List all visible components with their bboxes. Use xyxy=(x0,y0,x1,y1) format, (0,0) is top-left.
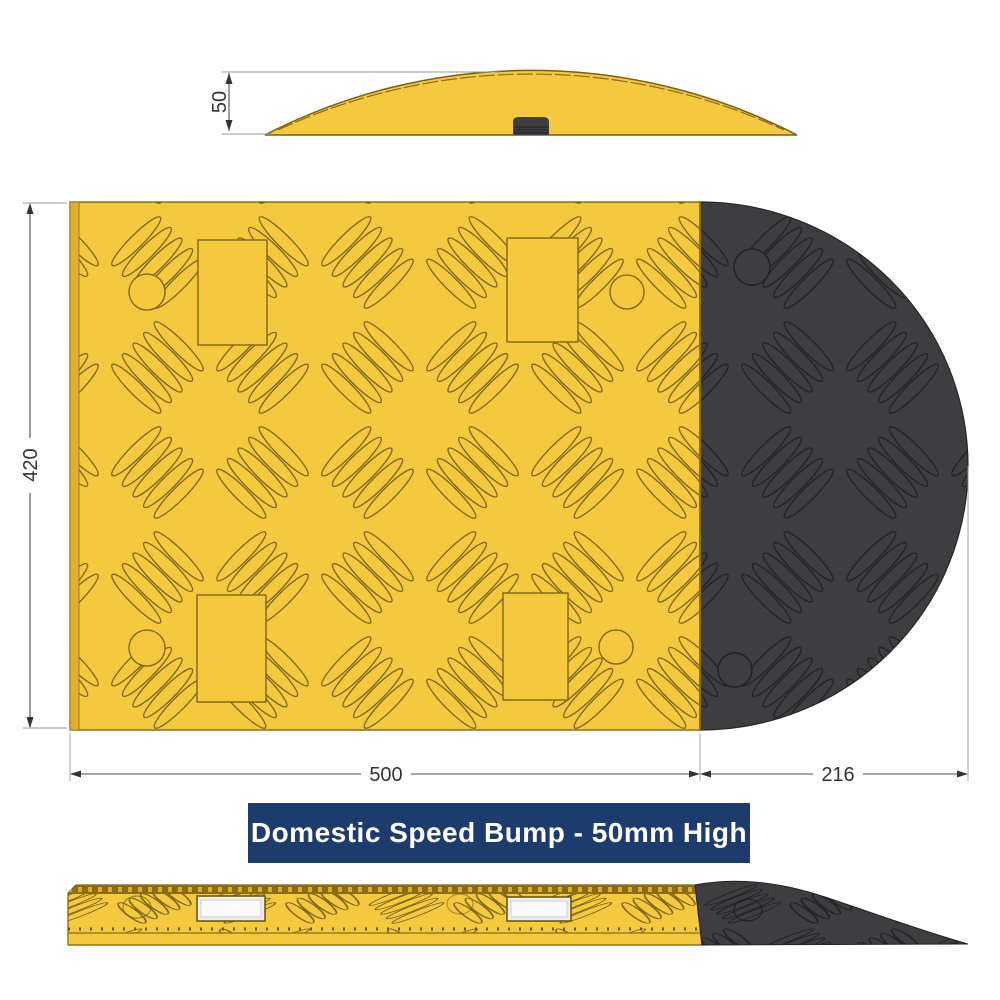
side-elevation-view xyxy=(68,877,975,947)
fixing-hole xyxy=(718,653,752,687)
arrowhead-down-icon xyxy=(226,120,233,131)
fixing-hole xyxy=(129,274,165,310)
end-profile-view: 50 xyxy=(209,70,797,135)
arrowhead-up-icon xyxy=(27,203,34,214)
dimension-label-cap-length: 216 xyxy=(821,764,854,786)
dimension-500: 500 xyxy=(70,762,700,786)
profile-center-connector xyxy=(513,117,549,135)
arrowhead-down-icon xyxy=(27,717,34,728)
fixing-hole xyxy=(610,275,644,309)
dimension-label-height: 50 xyxy=(209,91,231,113)
arrowhead-left-icon xyxy=(70,771,81,778)
elevation-black-texture xyxy=(695,877,975,947)
fixing-hole xyxy=(734,249,770,285)
title-banner-label: Domestic Speed Bump - 50mm High xyxy=(251,817,747,849)
elevation-top-edge-band xyxy=(68,885,702,894)
dimension-label-depth: 420 xyxy=(20,448,42,481)
fixing-hole xyxy=(599,630,633,664)
dimension-216: 216 xyxy=(700,762,968,786)
plan-view: 420 500 216 xyxy=(19,202,968,786)
bolt-plate xyxy=(197,595,266,702)
fixing-hole xyxy=(129,630,165,666)
arrowhead-up-icon xyxy=(226,73,233,84)
arrowhead-left-icon xyxy=(700,771,711,778)
arrowhead-right-icon xyxy=(957,771,968,778)
reflective-strip-inner xyxy=(201,900,261,917)
dimension-420: 420 xyxy=(19,203,67,728)
plan-plate-left-edge xyxy=(70,202,79,730)
bolt-plate xyxy=(507,238,578,342)
dimension-label-body-length: 500 xyxy=(369,764,402,786)
arrowhead-right-icon xyxy=(689,771,700,778)
elevation-yellow-texture xyxy=(68,894,702,933)
title-banner: Domestic Speed Bump - 50mm High xyxy=(248,803,750,863)
speed-bump-technical-drawing: 50 xyxy=(0,0,1000,1000)
bolt-plate xyxy=(503,593,568,700)
bolt-plate xyxy=(198,240,267,345)
reflective-strip-inner xyxy=(511,901,567,917)
